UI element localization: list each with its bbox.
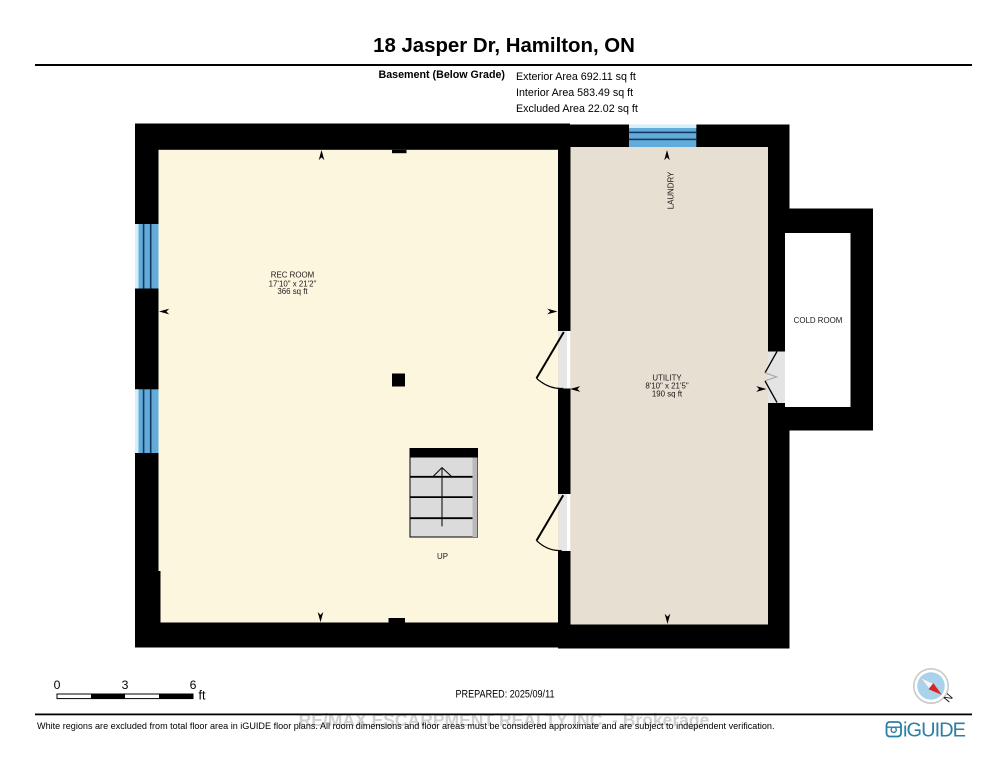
svg-text:3: 3 bbox=[122, 678, 129, 692]
svg-text:N: N bbox=[942, 691, 956, 705]
svg-text:iGUIDE: iGUIDE bbox=[903, 720, 966, 742]
svg-text:6: 6 bbox=[190, 678, 197, 692]
svg-text:PREPARED: 2025/09/11: PREPARED: 2025/09/11 bbox=[456, 689, 555, 701]
svg-text:White regions are excluded fro: White regions are excluded from total fl… bbox=[37, 721, 775, 731]
svg-text:0: 0 bbox=[54, 678, 61, 692]
svg-text:ft: ft bbox=[199, 689, 206, 703]
